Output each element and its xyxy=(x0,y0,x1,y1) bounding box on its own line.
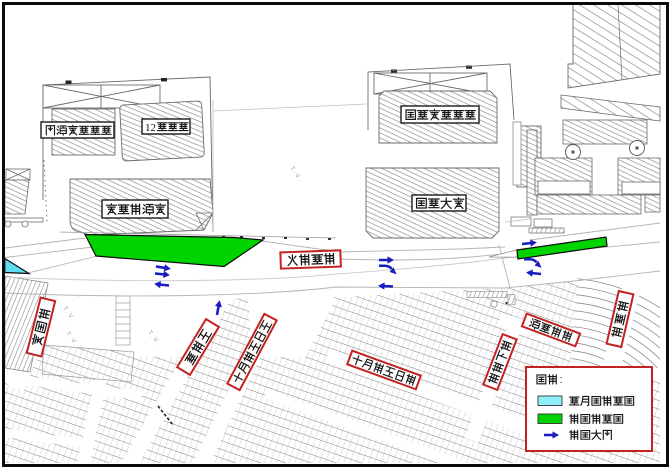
svg-text:12: 12 xyxy=(145,122,156,134)
svg-text::: : xyxy=(560,374,563,386)
